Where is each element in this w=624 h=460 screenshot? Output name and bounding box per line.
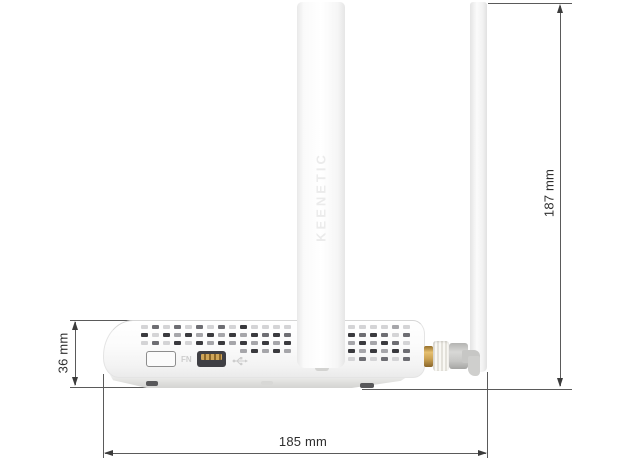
usb-contacts: [201, 354, 222, 360]
vent-hole: [262, 333, 269, 337]
vent-hole: [218, 333, 225, 337]
vent-hole: [284, 333, 291, 337]
vent-hole: [403, 341, 410, 345]
antenna-right: [470, 2, 487, 372]
vent-hole: [229, 325, 236, 329]
usb-port: [197, 351, 226, 367]
vent-hole: [251, 333, 258, 337]
dim-width-arrow-left: [104, 450, 113, 456]
vent-hole: [359, 357, 366, 361]
router-foot-left: [146, 381, 158, 386]
vent-hole: [273, 333, 280, 337]
dim-width-arrow-right: [478, 450, 487, 456]
vent-hole: [174, 333, 181, 337]
vent-hole: [381, 349, 388, 353]
vent-hole: [207, 333, 214, 337]
vent-hole: [381, 325, 388, 329]
vent-hole: [152, 341, 159, 345]
vent-hole: [381, 333, 388, 337]
vent-hole: [152, 325, 159, 329]
vent-hole: [403, 333, 410, 337]
vent-hole: [392, 341, 399, 345]
dim-width-line: [105, 453, 486, 454]
vent-hole: [392, 349, 399, 353]
vent-hole: [207, 325, 214, 329]
vent-hole: [251, 341, 258, 345]
vent-hole: [163, 341, 170, 345]
vent-hole: [359, 333, 366, 337]
vent-hole: [273, 325, 280, 329]
vent-hole: [262, 325, 269, 329]
vent-hole: [370, 357, 377, 361]
sma-connector-elbow-lower: [468, 356, 480, 376]
vent-hole: [273, 349, 280, 353]
dim-body-line: [75, 322, 76, 385]
vent-hole: [284, 349, 291, 353]
dim-height-ext-bottom: [362, 389, 572, 390]
fn-button: [146, 351, 176, 367]
dim-height-label: 187 mm: [542, 169, 557, 217]
vent-hole: [370, 349, 377, 353]
vent-hole: [251, 325, 258, 329]
vent-hole: [174, 341, 181, 345]
vent-hole: [163, 325, 170, 329]
vent-hole: [196, 333, 203, 337]
vent-hole: [207, 341, 214, 345]
dim-width-ext-right: [487, 372, 488, 458]
vent-hole: [185, 341, 192, 345]
dim-width-label: 185 mm: [279, 434, 327, 449]
vent-hole: [185, 325, 192, 329]
vent-hole: [218, 341, 225, 345]
vent-hole: [381, 341, 388, 345]
vent-hole: [218, 325, 225, 329]
vent-hole: [392, 357, 399, 361]
vent-hole: [348, 341, 355, 345]
vent-hole: [370, 325, 377, 329]
usb-icon: [232, 353, 248, 371]
dim-body-arrow-bottom: [72, 377, 78, 386]
vent-hole: [359, 325, 366, 329]
dim-body-label: 36 mm: [56, 333, 71, 374]
vent-hole: [348, 333, 355, 337]
dimension-diagram: 187 mm 36 mm 185 mm FN: [0, 0, 624, 460]
vent-hole: [359, 341, 366, 345]
antenna-brand-text: KEENETIC: [314, 152, 329, 242]
vent-hole: [392, 325, 399, 329]
vent-hole: [403, 325, 410, 329]
router-foot-middle: [261, 381, 273, 385]
vent-hole: [185, 333, 192, 337]
vent-hole: [229, 333, 236, 337]
vent-hole: [229, 341, 236, 345]
vent-hole: [381, 357, 388, 361]
sma-connector-nut: [433, 341, 449, 371]
dim-height-line: [560, 6, 561, 386]
router-foot-right: [360, 383, 374, 388]
dim-height-arrow-top: [557, 4, 563, 13]
dim-body-arrow-top: [72, 321, 78, 330]
vent-hole: [196, 325, 203, 329]
vent-hole: [284, 341, 291, 345]
vent-hole: [163, 333, 170, 337]
vent-hole: [403, 357, 410, 361]
vent-hole: [240, 325, 247, 329]
antenna-left: KEENETIC: [297, 2, 345, 368]
sma-connector-gold-ring: [424, 346, 433, 367]
vent-hole: [152, 333, 159, 337]
vent-hole: [141, 325, 148, 329]
vent-hole: [273, 341, 280, 345]
vent-hole: [370, 341, 377, 345]
vent-hole: [240, 333, 247, 337]
vent-hole: [251, 349, 258, 353]
vent-hole: [141, 333, 148, 337]
vent-hole: [262, 341, 269, 345]
fn-button-label: FN: [181, 355, 192, 364]
dim-height-arrow-bottom: [557, 378, 563, 387]
vent-hole: [348, 349, 355, 353]
vent-hole: [284, 325, 291, 329]
vent-hole: [262, 349, 269, 353]
dim-width-ext-left: [103, 374, 104, 458]
vent-hole: [370, 333, 377, 337]
vent-hole: [348, 357, 355, 361]
vent-hole: [403, 349, 410, 353]
vent-hole: [141, 341, 148, 345]
vent-hole: [348, 325, 355, 329]
vent-hole: [392, 333, 399, 337]
vent-hole: [240, 341, 247, 345]
vent-hole: [174, 325, 181, 329]
vent-hole: [196, 341, 203, 345]
vent-hole: [359, 349, 366, 353]
